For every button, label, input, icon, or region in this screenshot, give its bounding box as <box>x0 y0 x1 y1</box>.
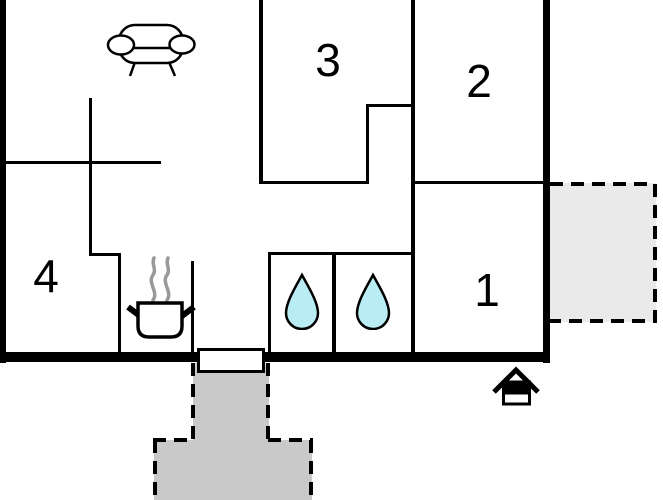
wall-room4-right-upper <box>89 98 92 256</box>
room-label-3: 3 <box>298 31 358 89</box>
wall-room3-notch-left <box>366 105 369 184</box>
outer-wall-left <box>0 0 6 363</box>
wall-room4-top <box>6 161 161 164</box>
house-entrance-icon <box>492 365 540 407</box>
wall-room4-step <box>89 253 121 256</box>
room-label-1: 1 <box>457 261 517 319</box>
wall-room4-right-lower <box>118 253 121 358</box>
cooking-pot-steam-icon <box>125 255 197 343</box>
sofa-icon <box>105 20 200 78</box>
room-label-2: 2 <box>449 52 509 110</box>
room-label-4: 4 <box>16 247 76 305</box>
wall-room3-bottom <box>259 181 369 184</box>
steam-icon <box>151 258 168 300</box>
outer-wall-right <box>543 0 550 363</box>
wall-bathroom-divider <box>332 252 336 358</box>
floor-plan: 3 2 1 4 <box>0 0 663 500</box>
water-drop-icon <box>283 272 321 330</box>
wall-bathroom-left <box>268 252 271 358</box>
outer-wall-bottom-right <box>263 352 550 362</box>
wall-bathroom-top <box>268 252 414 255</box>
wall-room3-notch-top <box>366 104 414 107</box>
wall-center-long <box>411 0 415 358</box>
wall-room3-left <box>259 0 263 184</box>
water-drop-icon <box>354 272 392 330</box>
outer-wall-bottom-left <box>0 352 199 362</box>
entrance-door <box>197 348 265 373</box>
wall-room2-bottom <box>413 181 543 184</box>
